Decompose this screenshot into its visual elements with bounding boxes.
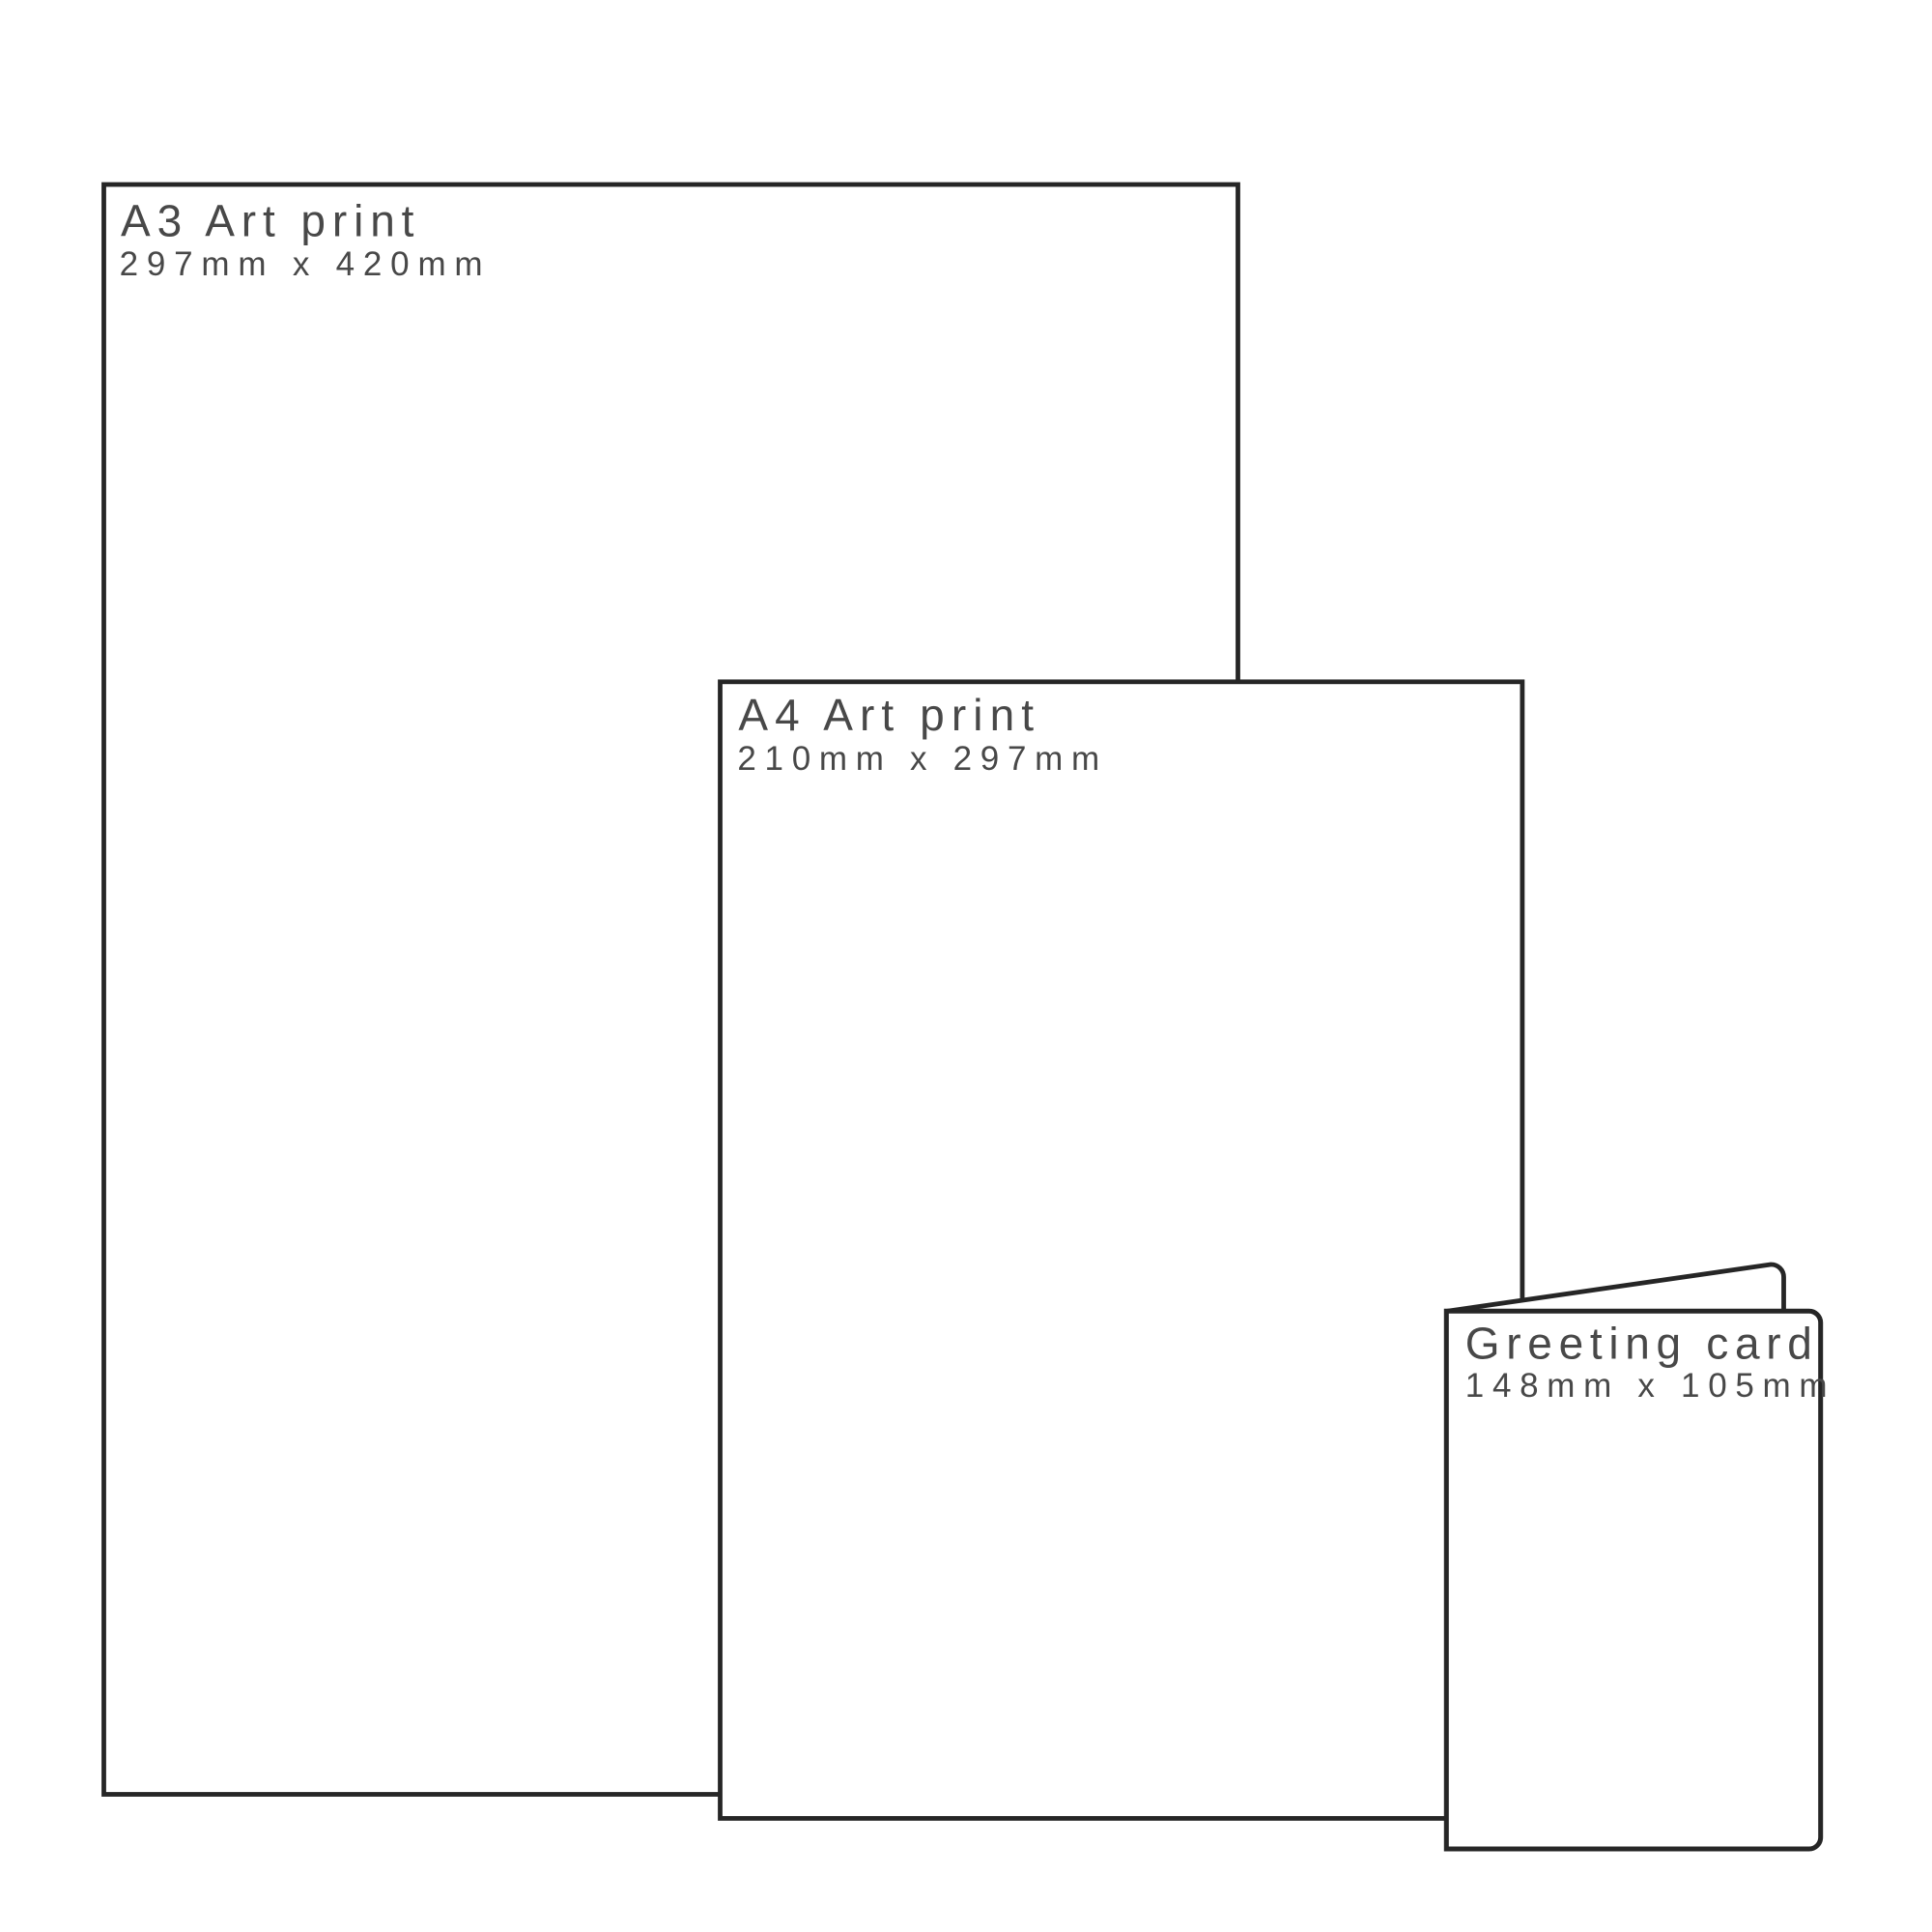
svg-text:148mm x 105mm: 148mm x 105mm [1465, 1367, 1835, 1405]
svg-text:A4 Art print: A4 Art print [738, 690, 1040, 740]
svg-text:A3 Art print: A3 Art print [121, 195, 420, 245]
svg-text:297mm x 420mm: 297mm x 420mm [120, 245, 492, 283]
svg-text:Greeting card: Greeting card [1465, 1319, 1819, 1369]
svg-text:210mm x 297mm: 210mm x 297mm [737, 740, 1107, 778]
